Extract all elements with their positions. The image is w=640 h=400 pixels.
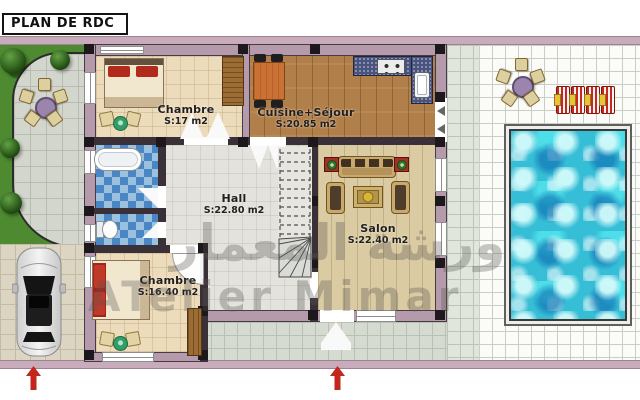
- bush-icon: [0, 138, 20, 158]
- garden-chair-icon: [38, 78, 51, 91]
- sun-lounger-icon: [571, 86, 585, 114]
- room-label-chambre-2: Chambre S:16.40 m2: [138, 274, 199, 299]
- window-icon: [356, 310, 396, 322]
- wall-bath-wc: [84, 208, 166, 214]
- sofa-cushions: [341, 159, 393, 167]
- room-area: S:16.40 m2: [138, 287, 199, 298]
- room-area: S:20.85 m2: [257, 119, 354, 130]
- column: [310, 44, 320, 54]
- column: [198, 243, 208, 253]
- car-icon: [12, 246, 66, 358]
- pillow: [136, 66, 158, 77]
- room-name: Chambre: [138, 274, 199, 287]
- bush-icon: [50, 50, 70, 70]
- sink-icon: [414, 72, 430, 98]
- page-title: PLAN DE RDC: [2, 13, 128, 35]
- room-area: S:22.80 m2: [204, 205, 265, 216]
- dining-chair-icon: [254, 54, 266, 62]
- driveway-arrow-icon: [26, 366, 41, 390]
- floor-plan-canvas: Chambre S:17 m2 Cuisine+Séjour S:20.85 m…: [0, 0, 640, 400]
- pillow: [94, 292, 105, 315]
- coffee-table-icon: [353, 186, 383, 208]
- terrace-door-gap: [435, 98, 447, 142]
- swimming-pool: [504, 124, 632, 326]
- column: [435, 258, 445, 268]
- bush-icon: [0, 48, 26, 74]
- stairs-icon: [278, 147, 312, 279]
- window-icon: [102, 352, 154, 362]
- window-icon: [435, 158, 447, 192]
- column: [308, 137, 318, 147]
- room-label-salon: Salon S:22.40 m2: [348, 222, 409, 247]
- column: [84, 350, 94, 360]
- stove-icon: [377, 59, 405, 74]
- side-table-icon: [324, 157, 339, 172]
- wardrobe-icon: [187, 308, 202, 356]
- terrace-door-swing-icon: [437, 124, 445, 134]
- bath-door-gap: [158, 186, 166, 208]
- pool-water: [509, 129, 627, 321]
- room-area: S:22.40 m2: [348, 235, 409, 246]
- dining-table-icon: [253, 62, 285, 100]
- column: [84, 44, 94, 54]
- window-icon: [84, 224, 96, 242]
- window-icon: [100, 46, 144, 54]
- wc-door-gap: [158, 222, 166, 238]
- room-area: S:17 m2: [158, 116, 215, 127]
- room-label-hall: Hall S:22.80 m2: [204, 192, 265, 217]
- window-icon: [84, 72, 96, 104]
- bathtub-icon: [94, 148, 142, 171]
- plant-icon: [397, 160, 407, 170]
- toilet-bowl-icon: [102, 220, 118, 239]
- column: [435, 137, 445, 147]
- bed-foot: [105, 97, 163, 107]
- headboard: [105, 59, 163, 65]
- room-label-cuisine-sejour: Cuisine+Séjour S:20.85 m2: [257, 106, 354, 131]
- window-icon: [435, 222, 447, 256]
- bed-icon: [104, 58, 164, 108]
- column: [84, 243, 94, 253]
- room-label-chambre-1: Chambre S:17 m2: [158, 103, 215, 128]
- room-name: Hall: [204, 192, 265, 205]
- column: [435, 92, 445, 102]
- wardrobe-icon: [222, 56, 244, 106]
- sun-lounger-icon: [601, 86, 615, 114]
- column: [84, 137, 94, 147]
- side-table-icon: [394, 157, 409, 172]
- terrace-chair-icon: [515, 58, 528, 71]
- entrance-arrow-icon: [330, 366, 345, 390]
- side-table-icon: [113, 336, 128, 351]
- sun-lounger-icon: [556, 86, 570, 114]
- column: [435, 310, 445, 320]
- chambre2-door-gap: [170, 245, 200, 253]
- room-name: Salon: [348, 222, 409, 235]
- sofa-seat: [342, 168, 392, 175]
- room-name: Cuisine+Séjour: [257, 106, 354, 119]
- column: [435, 196, 445, 206]
- cuisine-door-gap: [250, 137, 286, 145]
- armchair-icon: [391, 181, 410, 214]
- column: [308, 310, 318, 320]
- sofa-icon: [338, 156, 396, 178]
- column: [238, 137, 248, 147]
- plant-icon: [327, 160, 337, 170]
- armchair-icon: [326, 182, 345, 214]
- column: [84, 206, 94, 216]
- front-door-gap: [320, 310, 354, 322]
- bush-icon: [0, 192, 22, 214]
- room-name: Chambre: [158, 103, 215, 116]
- column: [238, 44, 248, 54]
- dining-chair-icon: [271, 54, 283, 62]
- pillow: [108, 66, 130, 77]
- side-table-icon: [113, 116, 128, 131]
- column: [156, 137, 166, 147]
- column: [435, 44, 445, 54]
- sun-lounger-icon: [586, 86, 600, 114]
- terrace-door-swing-icon: [437, 106, 445, 116]
- pillow: [94, 265, 105, 288]
- terrace-walkway: [447, 45, 479, 360]
